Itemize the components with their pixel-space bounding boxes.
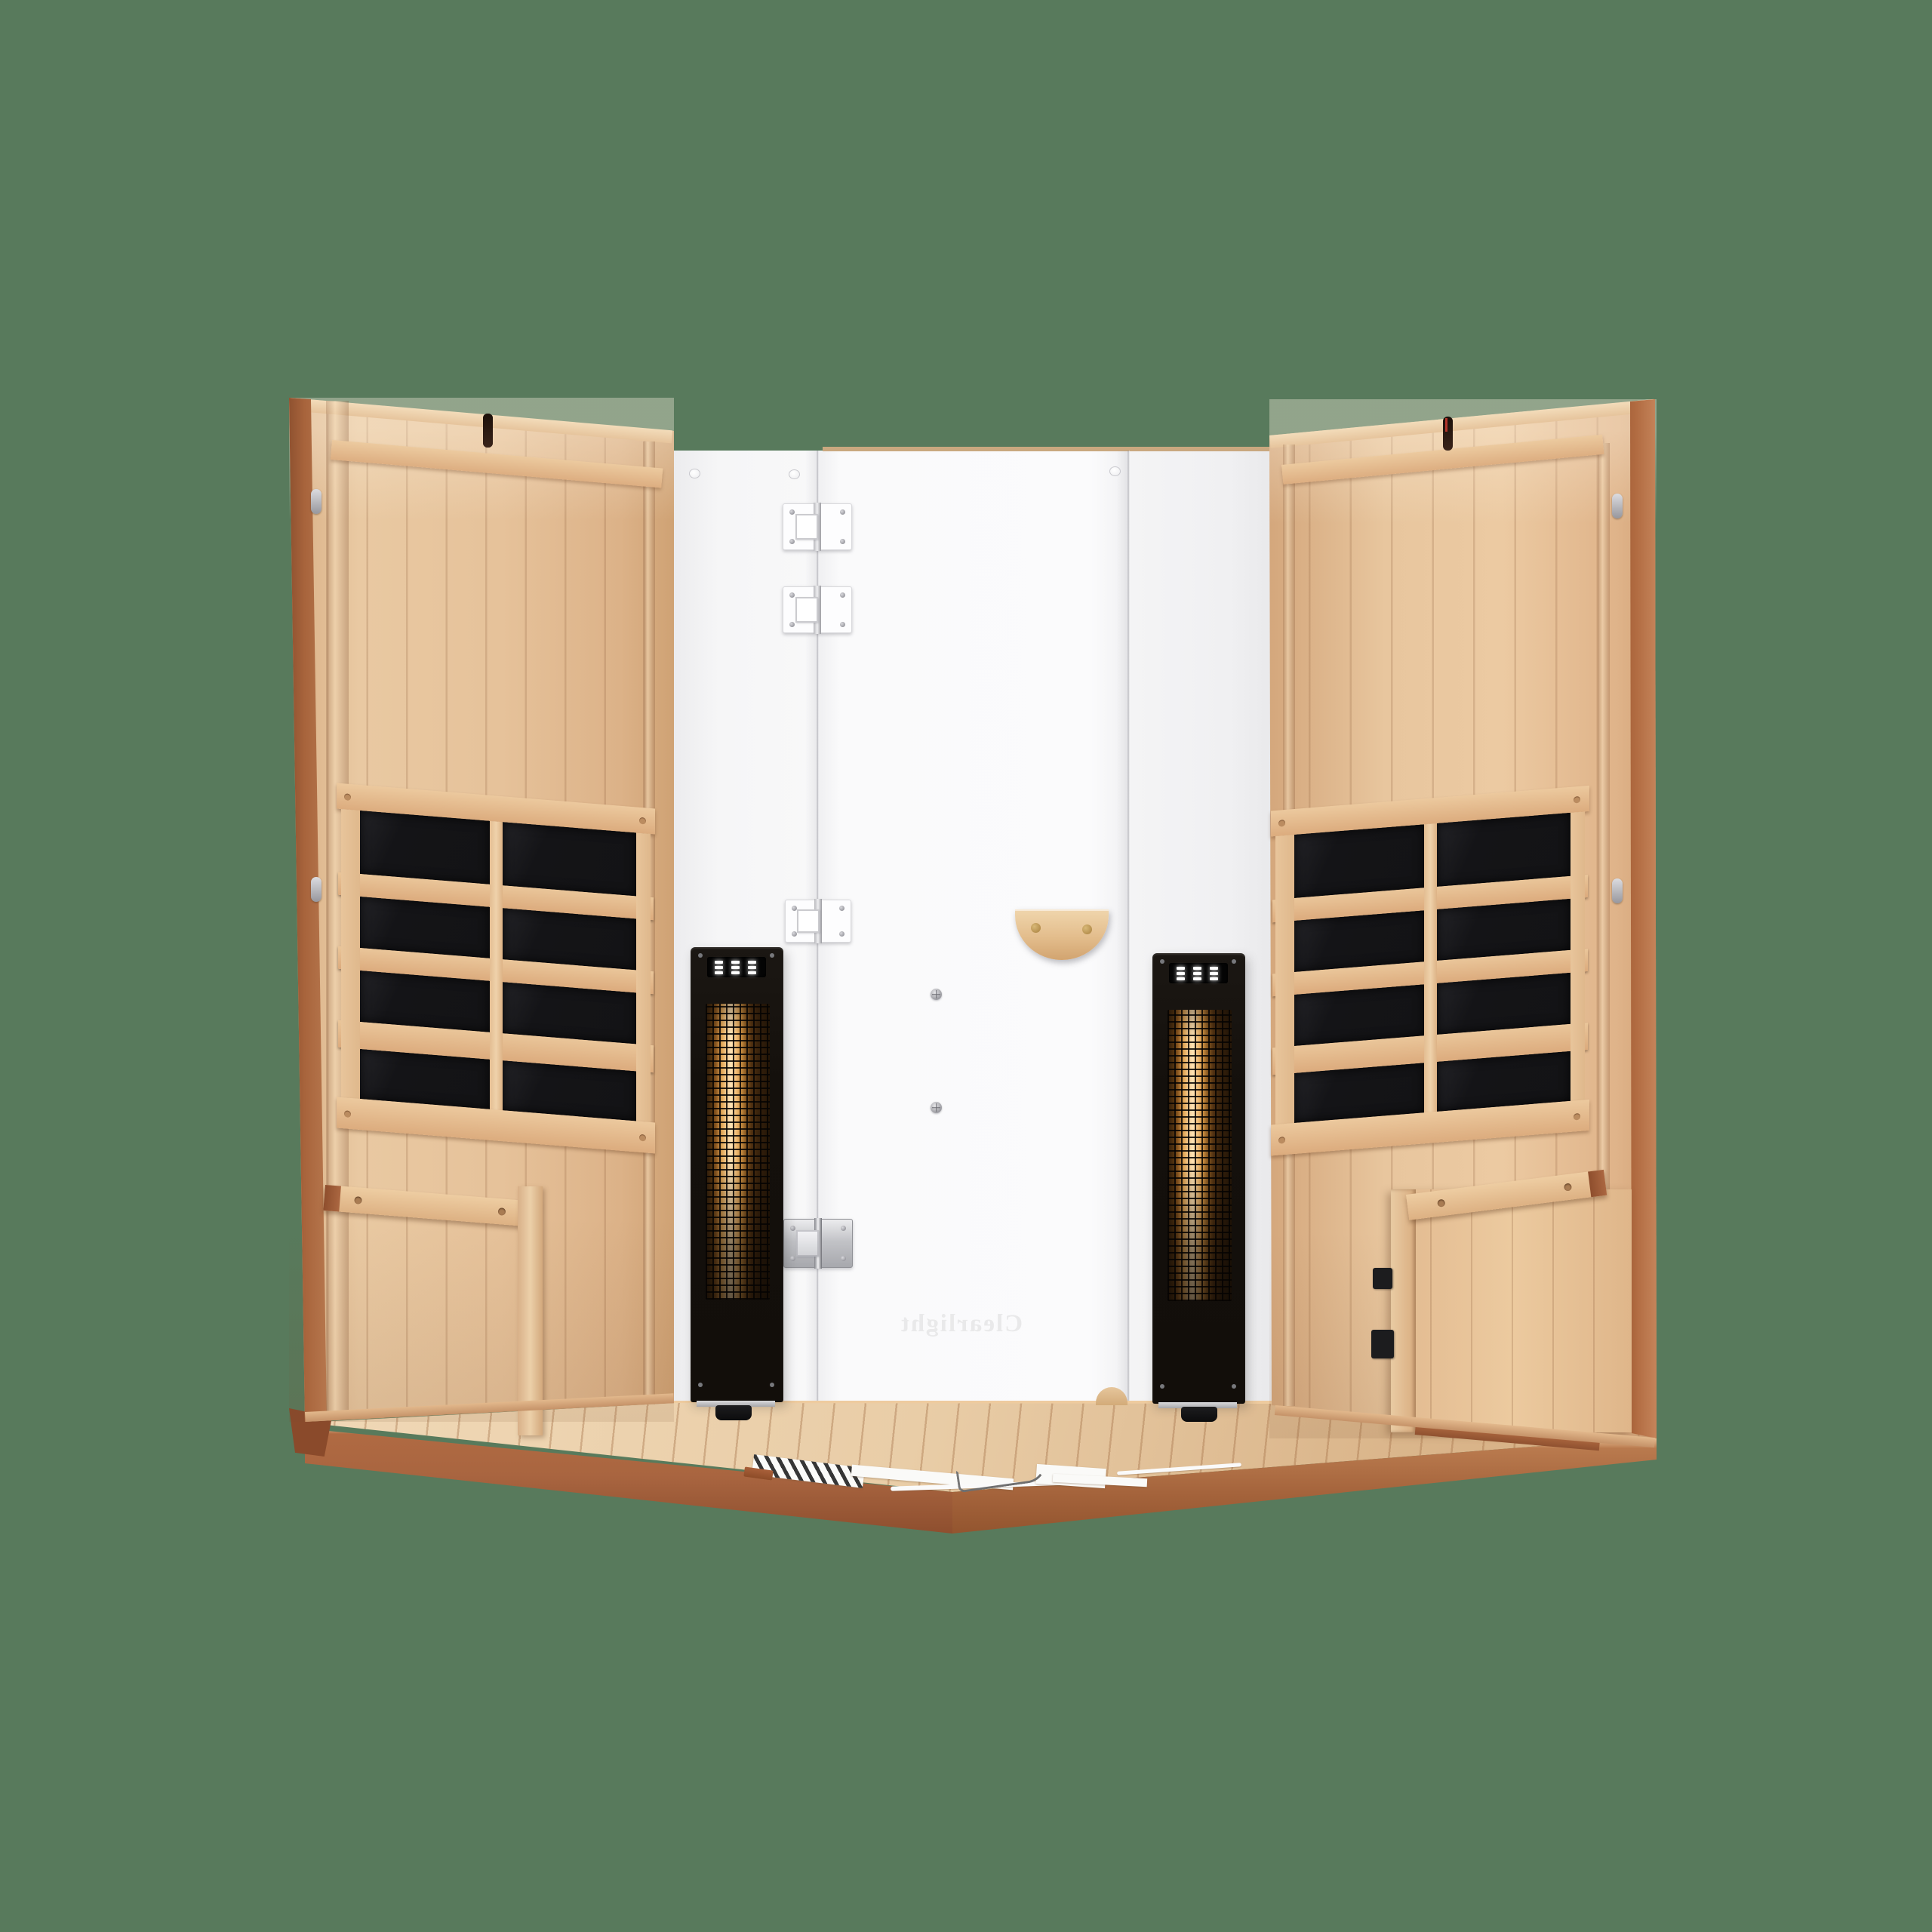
panel-screw [931,989,942,1000]
dowel-pin [1574,796,1580,804]
hinge-screw [789,539,795,544]
dowel-pin [639,1134,646,1141]
tower-led-vent [707,957,766,977]
hinge-cutout [797,909,820,933]
glowing-heater-element [1168,1010,1232,1301]
carbon-heater-window [1437,813,1571,887]
dowel-pin [344,793,351,801]
rail-screw-hole [1437,1199,1445,1207]
wall-hanging-slot [483,414,493,448]
led-light [1193,977,1201,980]
grid-center-divider [1424,823,1437,1112]
tower-screw [770,953,774,958]
wall-hanging-slot [1443,417,1453,451]
hinge-screw [839,931,844,937]
led-light [1177,977,1185,980]
right-wall-hatch-panel [1391,1189,1632,1432]
panel-screw [931,1102,942,1113]
led-light [715,961,723,964]
grid-side-margin [636,832,651,1122]
heater-emitter-grid [1275,786,1585,1159]
infrared-tower-heater [1152,953,1245,1404]
rail-screw-hole [354,1196,362,1204]
tower-screw [698,1383,703,1387]
led-light [1210,967,1218,970]
hinge-screw [840,539,845,544]
red-wire [1445,418,1447,432]
hinge-screw [792,906,797,911]
carbon-heater-window [360,811,490,884]
led-light [748,971,756,974]
panel-top-wood-sliver [823,447,1272,451]
white-hinge [783,586,852,633]
infrared-tower-heater [691,947,783,1402]
panel-dimple [1109,466,1121,476]
hinge-screw [792,931,797,937]
left-backrest-post [518,1186,543,1435]
led-light [1177,972,1185,975]
tower-screw [1232,959,1236,964]
hatch-clip [1371,1330,1394,1358]
panel-seam-right [1128,451,1130,1401]
hatch-frame-stile [1391,1189,1416,1432]
dowel-pin [344,1110,351,1118]
dowel-pin [1574,1112,1580,1120]
hinge-screw [841,1226,846,1231]
led-light [715,966,723,969]
carbon-heater-window [503,822,636,896]
hinge-cutout [795,597,818,623]
grid-center-divider [490,821,503,1110]
led-light [731,961,740,964]
hinge-screw [840,622,845,627]
tower-screw [1232,1384,1236,1389]
tower-screw [1160,959,1164,964]
white-hinge [785,900,851,943]
rail-screw-hole [1564,1183,1572,1191]
rail-end-cap [323,1185,341,1212]
handle-screw [1082,924,1092,934]
tower-foot [715,1405,752,1420]
panel-dimple [689,469,700,478]
grid-side-margin [341,809,360,1099]
led-light [1193,972,1201,975]
led-light [731,971,740,974]
hinge-screw [839,906,844,911]
led-light [748,961,756,964]
brand-watermark: Clearlight [900,1310,1023,1338]
tower-foot [1181,1407,1217,1422]
dowel-pin [1278,820,1285,827]
dowel-pin [639,817,646,825]
led-light [1177,967,1185,970]
glowing-heater-element [706,1004,770,1300]
hinge-screw [789,509,795,515]
hinge-screw [790,1226,795,1231]
led-light [731,966,740,969]
led-light [1193,967,1201,970]
dowel-pin [1278,1136,1285,1143]
heater-emitter-grid [341,783,651,1157]
wall-hinge-plate [311,489,321,514]
hinge-screw [840,592,845,598]
chrome-hinge [783,1219,853,1268]
led-light [1210,977,1218,980]
tower-led-vent [1169,963,1228,983]
hinge-screw [789,592,795,598]
right-wall-stile-outer [1598,443,1610,1198]
led-light [1210,972,1218,975]
led-light [748,966,756,969]
wall-hinge-plate [311,877,321,902]
hinge-screw [790,1256,795,1261]
grid-side-margin [1571,811,1585,1101]
product-photo-sauna-kit: Clearlight [0,0,1932,1932]
carbon-heater-window [1294,824,1424,898]
tower-screw [770,1383,774,1387]
hinge-screw [841,1256,846,1261]
rail-end-cap [1588,1170,1607,1197]
tower-screw [1160,1384,1164,1389]
white-hinge [783,503,852,550]
panel-dimple [789,469,800,479]
panel-seam-shadow [1116,451,1128,1401]
tower-screw [698,953,703,958]
grid-side-margin [1275,835,1294,1124]
hinge-cutout [795,514,818,540]
wall-hinge-plate [1612,878,1623,903]
hatch-clip [1373,1268,1392,1289]
wall-hinge-plate [1612,494,1623,518]
led-light [715,971,723,974]
hinge-screw [789,622,795,627]
hinge-cutout [796,1230,819,1257]
hinge-screw [840,509,845,515]
rail-screw-hole [498,1207,506,1216]
handle-screw [1031,923,1041,933]
